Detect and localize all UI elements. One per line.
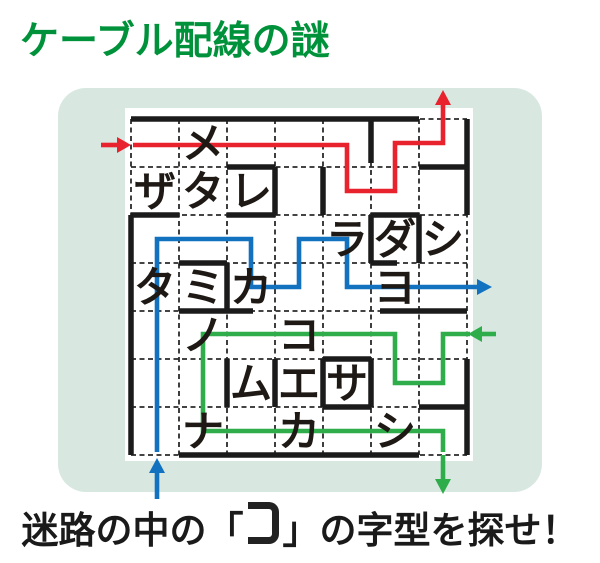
maze-letter: ヨ: [374, 263, 416, 312]
katakana-ko-shape-icon: [248, 502, 279, 544]
maze-letter: タ: [182, 167, 224, 216]
caption-suffix: 」の字型を探せ！: [283, 509, 579, 552]
maze-letter: エ: [278, 359, 320, 408]
maze-letter: ダ: [374, 215, 416, 264]
maze-letter: シ: [422, 215, 464, 264]
maze-letter: レ: [230, 167, 272, 216]
maze-letter: メ: [182, 119, 224, 168]
maze-letter: ナ: [182, 407, 224, 456]
maze-letter: カ: [278, 407, 320, 456]
maze-letter: シ: [374, 407, 416, 456]
maze-letter: コ: [278, 311, 320, 360]
maze-illustration: メ ザ タ レ ラ ダ シ タ ミ カ ヨ ノ コ ム エ サ ナ カ シ: [0, 0, 600, 563]
caption-prefix: 迷路の中の「: [22, 509, 244, 552]
maze-letter: ザ: [134, 167, 176, 216]
maze-letter: ラ: [326, 215, 368, 264]
puzzle-page: ケーブル配線の謎: [0, 0, 600, 563]
maze-letter: サ: [326, 359, 368, 408]
caption: 迷路の中の「」の字型を探せ！: [0, 500, 600, 554]
maze-letter: タ: [134, 263, 176, 312]
maze-letter: カ: [230, 263, 272, 312]
maze-letter: ミ: [182, 263, 224, 312]
maze-letter: ノ: [182, 311, 224, 360]
maze-letter: ム: [230, 359, 272, 408]
